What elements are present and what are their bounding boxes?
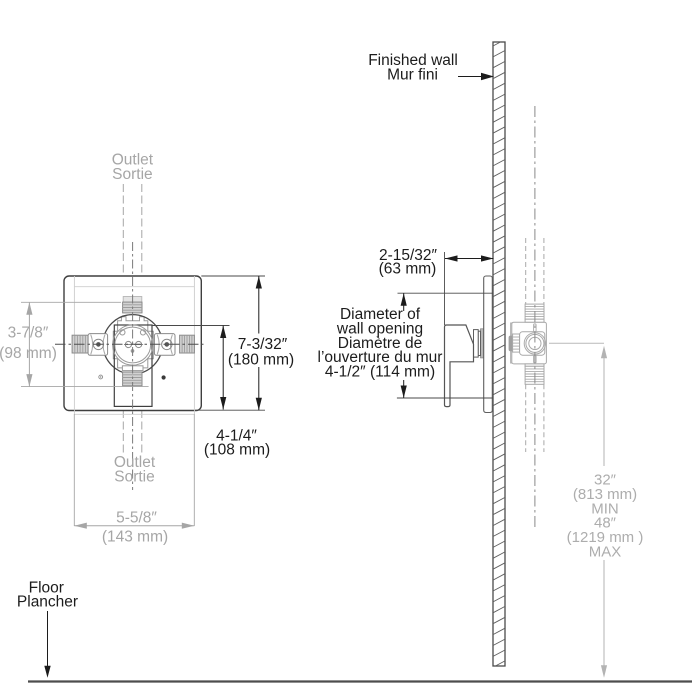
svg-text:(98 mm): (98 mm) (0, 345, 57, 362)
svg-text:7-3/32″: 7-3/32″ (238, 336, 288, 353)
svg-text:(180 mm): (180 mm) (228, 352, 294, 369)
svg-text:Sortie: Sortie (114, 469, 155, 486)
svg-text:5-5/8″: 5-5/8″ (116, 510, 157, 527)
svg-text:3-7/8″: 3-7/8″ (8, 325, 49, 342)
svg-text:(108 mm): (108 mm) (204, 442, 270, 459)
svg-text:Plancher: Plancher (17, 594, 78, 611)
svg-text:(63 mm): (63 mm) (379, 261, 437, 278)
svg-text:4-1/2″ (114 mm): 4-1/2″ (114 mm) (325, 364, 435, 381)
svg-text:MAX: MAX (589, 543, 622, 560)
svg-text:Mur fini: Mur fini (387, 67, 438, 84)
svg-text:(143 mm): (143 mm) (102, 529, 168, 546)
svg-text:Sortie: Sortie (112, 166, 153, 183)
